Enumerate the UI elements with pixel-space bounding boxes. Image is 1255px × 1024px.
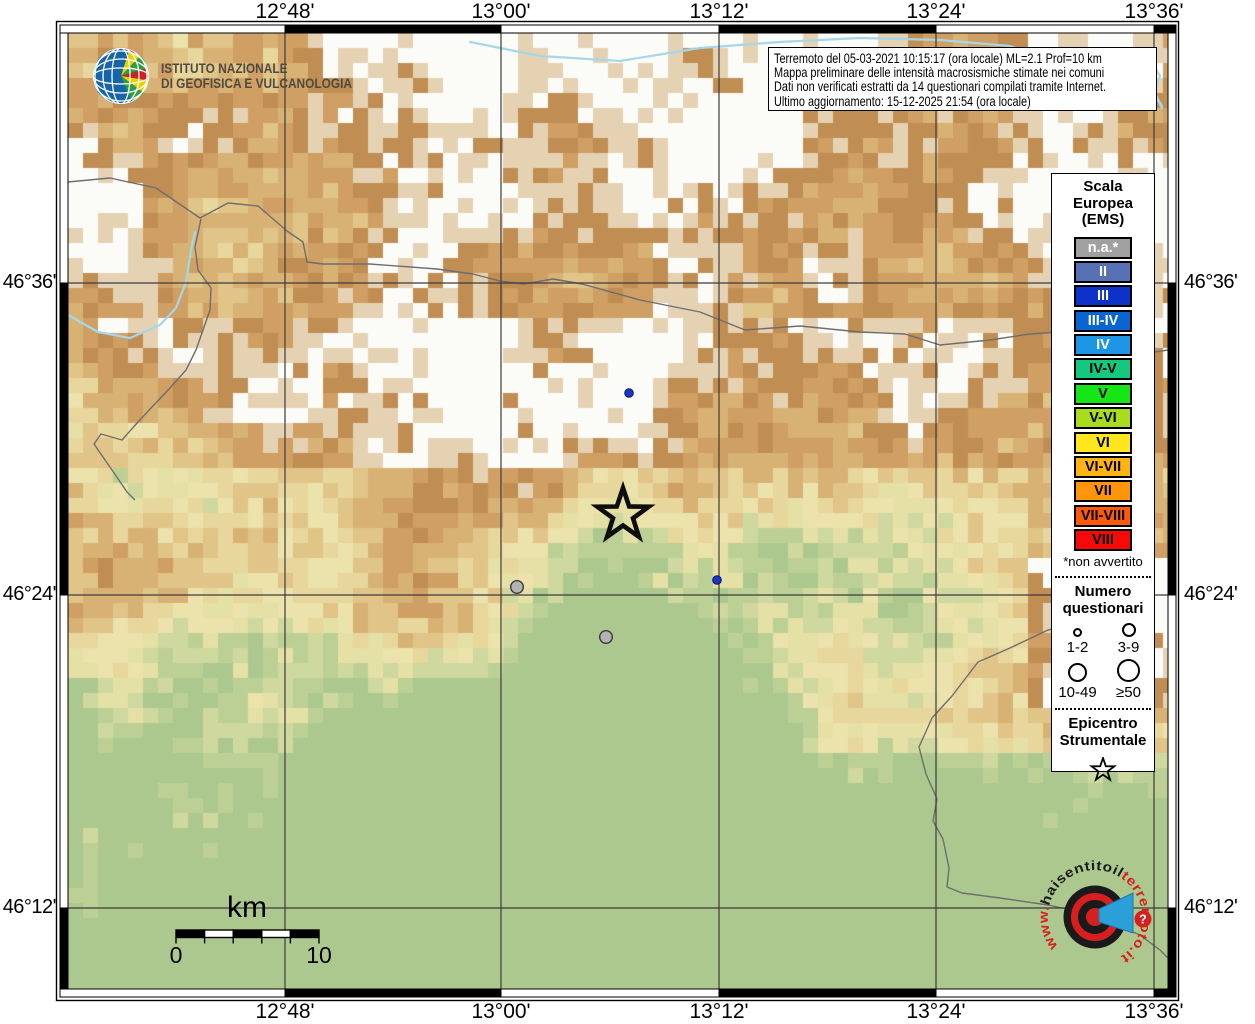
epicenter-title-line1: Epicentro xyxy=(1052,716,1154,733)
frame-band-segment xyxy=(501,989,719,997)
axis-label-bottom-3: 13°24' xyxy=(896,1000,976,1024)
axis-label-right-0: 46°36' xyxy=(1184,271,1254,294)
scale-bar-start-label: 0 xyxy=(170,942,183,968)
intensity-box-viii: VIII xyxy=(1074,529,1132,551)
frame-band-segment xyxy=(285,25,501,33)
haisentitoilterremoto-logo: www.haisentitoilterremoto.it ? xyxy=(1019,841,1171,993)
questionnaire-marker-blue xyxy=(625,389,634,398)
intensity-box-vivii: VI-VII xyxy=(1074,456,1132,478)
legend-title-line3: (EMS) xyxy=(1052,212,1154,229)
scale-bar-segment xyxy=(176,930,205,938)
scale-bar-segment xyxy=(205,930,234,938)
axis-label-left-2: 46°12' xyxy=(0,896,56,919)
frame-band-segment xyxy=(1168,283,1176,595)
ingv-name-line2: DI GEOFISICA E VULCANOLOGIA xyxy=(161,76,352,92)
legend-title-line2: Europea xyxy=(1052,196,1154,213)
intensity-box-vi: VI xyxy=(1074,432,1132,454)
intensity-box-vii: VII xyxy=(1074,480,1132,502)
intensity-scale: n.a.*IIIIIIII-IVIVIV-VVV-VIVIVI-VIIVIIVI… xyxy=(1052,237,1154,552)
scale-bar-segment xyxy=(290,930,319,938)
size-circle-label: 1-2 xyxy=(1067,639,1089,656)
size-circle-icon xyxy=(1117,659,1140,682)
frame-band-segment xyxy=(285,989,501,997)
legend-panel: Scala Europea (EMS) n.a.*IIIIIIII-IVIVIV… xyxy=(1051,173,1155,772)
size-circle-icon xyxy=(1122,623,1136,637)
info-line-data-source: Dati non verificati estratti da 14 quest… xyxy=(774,79,1068,93)
epicenter-star-glyph xyxy=(1092,758,1115,780)
frame-band-segment xyxy=(719,989,936,997)
questionnaire-size-item: 1-2 xyxy=(1052,623,1103,656)
axis-label-top-4: 13°36' xyxy=(1114,0,1194,24)
info-line-map-type: Mappa preliminare delle intensità macros… xyxy=(774,65,1068,79)
axis-label-top-2: 13°12' xyxy=(679,0,759,24)
axis-label-left-1: 46°24' xyxy=(0,583,56,606)
legend-separator xyxy=(1055,708,1151,710)
frame-band-segment xyxy=(60,25,68,283)
admin-boundary-line xyxy=(94,219,211,500)
ingv-globe-icon xyxy=(93,45,151,107)
axis-label-bottom-0: 12°48' xyxy=(245,1000,325,1024)
questionnaire-size-item: 10-49 xyxy=(1052,659,1103,701)
ingv-wordmark: ISTITUTO NAZIONALE DI GEOFISICA E VULCAN… xyxy=(161,61,352,92)
size-circle-label: 3-9 xyxy=(1118,639,1140,656)
ingv-name-line1: ISTITUTO NAZIONALE xyxy=(161,61,352,77)
scale-bar-unit-label: km xyxy=(227,891,267,924)
questionnaire-marker-blue xyxy=(713,576,722,585)
earthquake-info-box: Terremoto del 05-03-2021 10:15:17 (ora l… xyxy=(768,47,1157,111)
epicenter-symbol xyxy=(1052,757,1154,790)
frame-outer-line xyxy=(57,22,1179,1001)
axis-label-left-0: 46°36' xyxy=(0,271,56,294)
questionnaire-marker-gray xyxy=(511,581,524,594)
info-line-updated: Ultimo aggiornamento: 15-12-2025 21:54 (… xyxy=(774,94,1068,108)
size-circle-label: ≥50 xyxy=(1116,684,1141,701)
scale-bar-end-label: 10 xyxy=(306,942,332,968)
intensity-box-ii: II xyxy=(1074,261,1132,283)
frame-band-segment xyxy=(1154,25,1176,33)
axis-label-right-2: 46°12' xyxy=(1184,896,1254,919)
intensity-box-v: V xyxy=(1074,383,1132,405)
axis-label-top-1: 13°00' xyxy=(461,0,541,24)
size-circle-icon xyxy=(1068,663,1087,682)
frame-band-segment xyxy=(1168,25,1176,283)
intensity-box-ivv: IV-V xyxy=(1074,358,1132,380)
intensity-box-vvi: V-VI xyxy=(1074,407,1132,429)
frame-band-segment xyxy=(60,25,285,33)
scale-bar-segment xyxy=(233,930,262,938)
questionnaire-size-item: 3-9 xyxy=(1103,623,1154,656)
frame-band-segment xyxy=(719,25,936,33)
questionnaires-title-line2: questionari xyxy=(1052,601,1154,618)
intensity-box-iiiiv: III-IV xyxy=(1074,310,1132,332)
river-line xyxy=(68,250,191,338)
info-line-event: Terremoto del 05-03-2021 10:15:17 (ora l… xyxy=(774,51,1068,65)
epicenter-star-icon xyxy=(1088,757,1118,785)
legend-footnote: *non avvertito xyxy=(1052,554,1154,569)
frame-band-segment xyxy=(936,25,1154,33)
legend-title: Scala Europea (EMS) xyxy=(1052,179,1154,229)
size-circle-label: 10-49 xyxy=(1058,684,1096,701)
admin-boundary-line xyxy=(68,178,1168,352)
axis-label-bottom-4: 13°36' xyxy=(1114,1000,1194,1024)
epicenter-star xyxy=(597,488,648,537)
frame-band-segment xyxy=(501,25,719,33)
intensity-box-na: n.a.* xyxy=(1074,237,1132,259)
axis-label-bottom-1: 13°00' xyxy=(461,1000,541,1024)
page: { "branding": { "ingv_line1": "ISTITUTO … xyxy=(0,0,1255,1024)
axis-label-right-1: 46°24' xyxy=(1184,583,1254,606)
ingv-logo: ISTITUTO NAZIONALE DI GEOFISICA E VULCAN… xyxy=(93,44,423,108)
questionnaires-title-line1: Numero xyxy=(1052,584,1154,601)
legend-separator xyxy=(1055,576,1151,578)
frame-band-segment xyxy=(60,283,68,595)
questionnaire-size-item: ≥50 xyxy=(1103,659,1154,701)
axis-label-top-0: 12°48' xyxy=(245,0,325,24)
legend-title-line1: Scala xyxy=(1052,179,1154,196)
scale-bar-segment xyxy=(262,930,291,938)
epicenter-title-line2: Strumentale xyxy=(1052,733,1154,750)
frame-band-segment xyxy=(60,989,285,997)
size-circle-icon xyxy=(1073,628,1082,637)
frame-band-segment xyxy=(60,595,68,908)
intensity-box-iii: III xyxy=(1074,285,1132,307)
axis-label-bottom-2: 13°12' xyxy=(679,1000,759,1024)
frame-band-segment xyxy=(60,908,68,997)
intensity-box-iv: IV xyxy=(1074,334,1132,356)
question-mark: ? xyxy=(1139,913,1147,927)
questionnaire-size-key: 1-23-910-49≥50 xyxy=(1052,623,1154,701)
questionnaire-marker-gray xyxy=(600,631,613,644)
axis-label-top-3: 13°24' xyxy=(896,0,976,24)
intensity-box-viiviii: VII-VIII xyxy=(1074,505,1132,527)
